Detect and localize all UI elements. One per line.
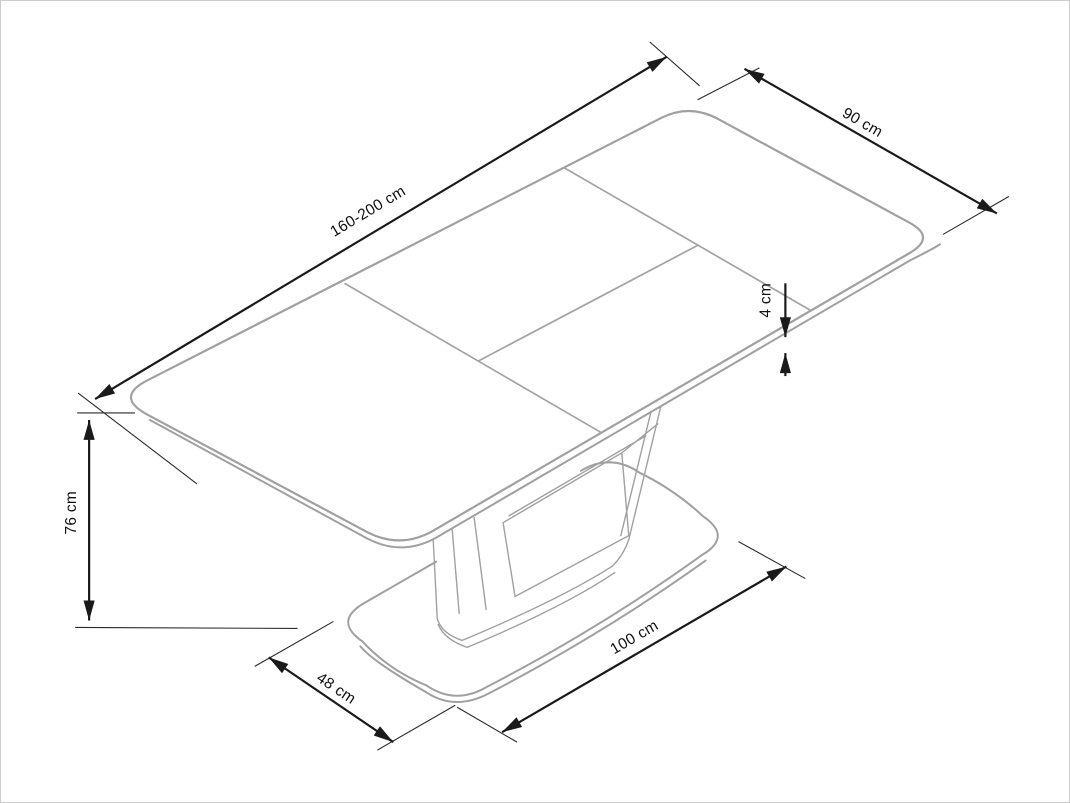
pedestal-column [433, 407, 660, 647]
dimension-line-base-width [269, 657, 394, 742]
dimension-table-width: 90 cm [698, 68, 1009, 235]
dimension-line-base-length [502, 567, 786, 733]
pedestal-left-leg-strip-1 [433, 541, 437, 619]
base-length-label: 100 cm [608, 617, 662, 658]
pedestal-left-leg-strip-3 [474, 518, 486, 610]
pedestal-foot-thickness-edge [438, 573, 615, 648]
table-dimension-diagram: 160-200 cm 90 cm 4 cm 76 cm 100 cm 48 cm [1, 1, 1069, 802]
diagram-canvas: 160-200 cm 90 cm 4 cm 76 cm 100 cm 48 cm [0, 0, 1070, 803]
extension-line [78, 393, 197, 484]
pedestal-right-leg-inner-edge [621, 413, 651, 536]
pedestal-frame-corner-edge [622, 424, 658, 453]
pedestal-foot-outline [437, 567, 612, 641]
extension-line [457, 707, 517, 742]
dimension-table-height: 76 cm [63, 413, 297, 628]
tabletop-outline [131, 111, 923, 540]
tabletop-thickness-edge [150, 244, 940, 547]
dimension-line-table-width [744, 69, 996, 214]
table-length-label: 160-200 cm [327, 183, 408, 241]
top-thickness-label: 4 cm [757, 283, 774, 318]
dimension-table-length: 160-200 cm [78, 42, 699, 484]
base-plate-outline [348, 462, 718, 695]
extension-line [75, 627, 297, 628]
extension-line [650, 42, 700, 86]
dimension-line-table-length [95, 57, 667, 399]
extension-line [377, 705, 455, 750]
table-height-label: 76 cm [63, 491, 80, 535]
extension-line [738, 542, 805, 579]
dimension-base-length: 100 cm [457, 542, 805, 742]
tabletop-seam-center [478, 245, 697, 361]
dimension-top-thickness: 4 cm [757, 283, 785, 376]
tabletop-seam-left [344, 283, 601, 433]
pedestal-frame-opening [503, 453, 629, 597]
base-plate [348, 462, 718, 702]
pedestal-left-leg-strip-2 [452, 530, 459, 614]
tabletop [131, 111, 940, 547]
